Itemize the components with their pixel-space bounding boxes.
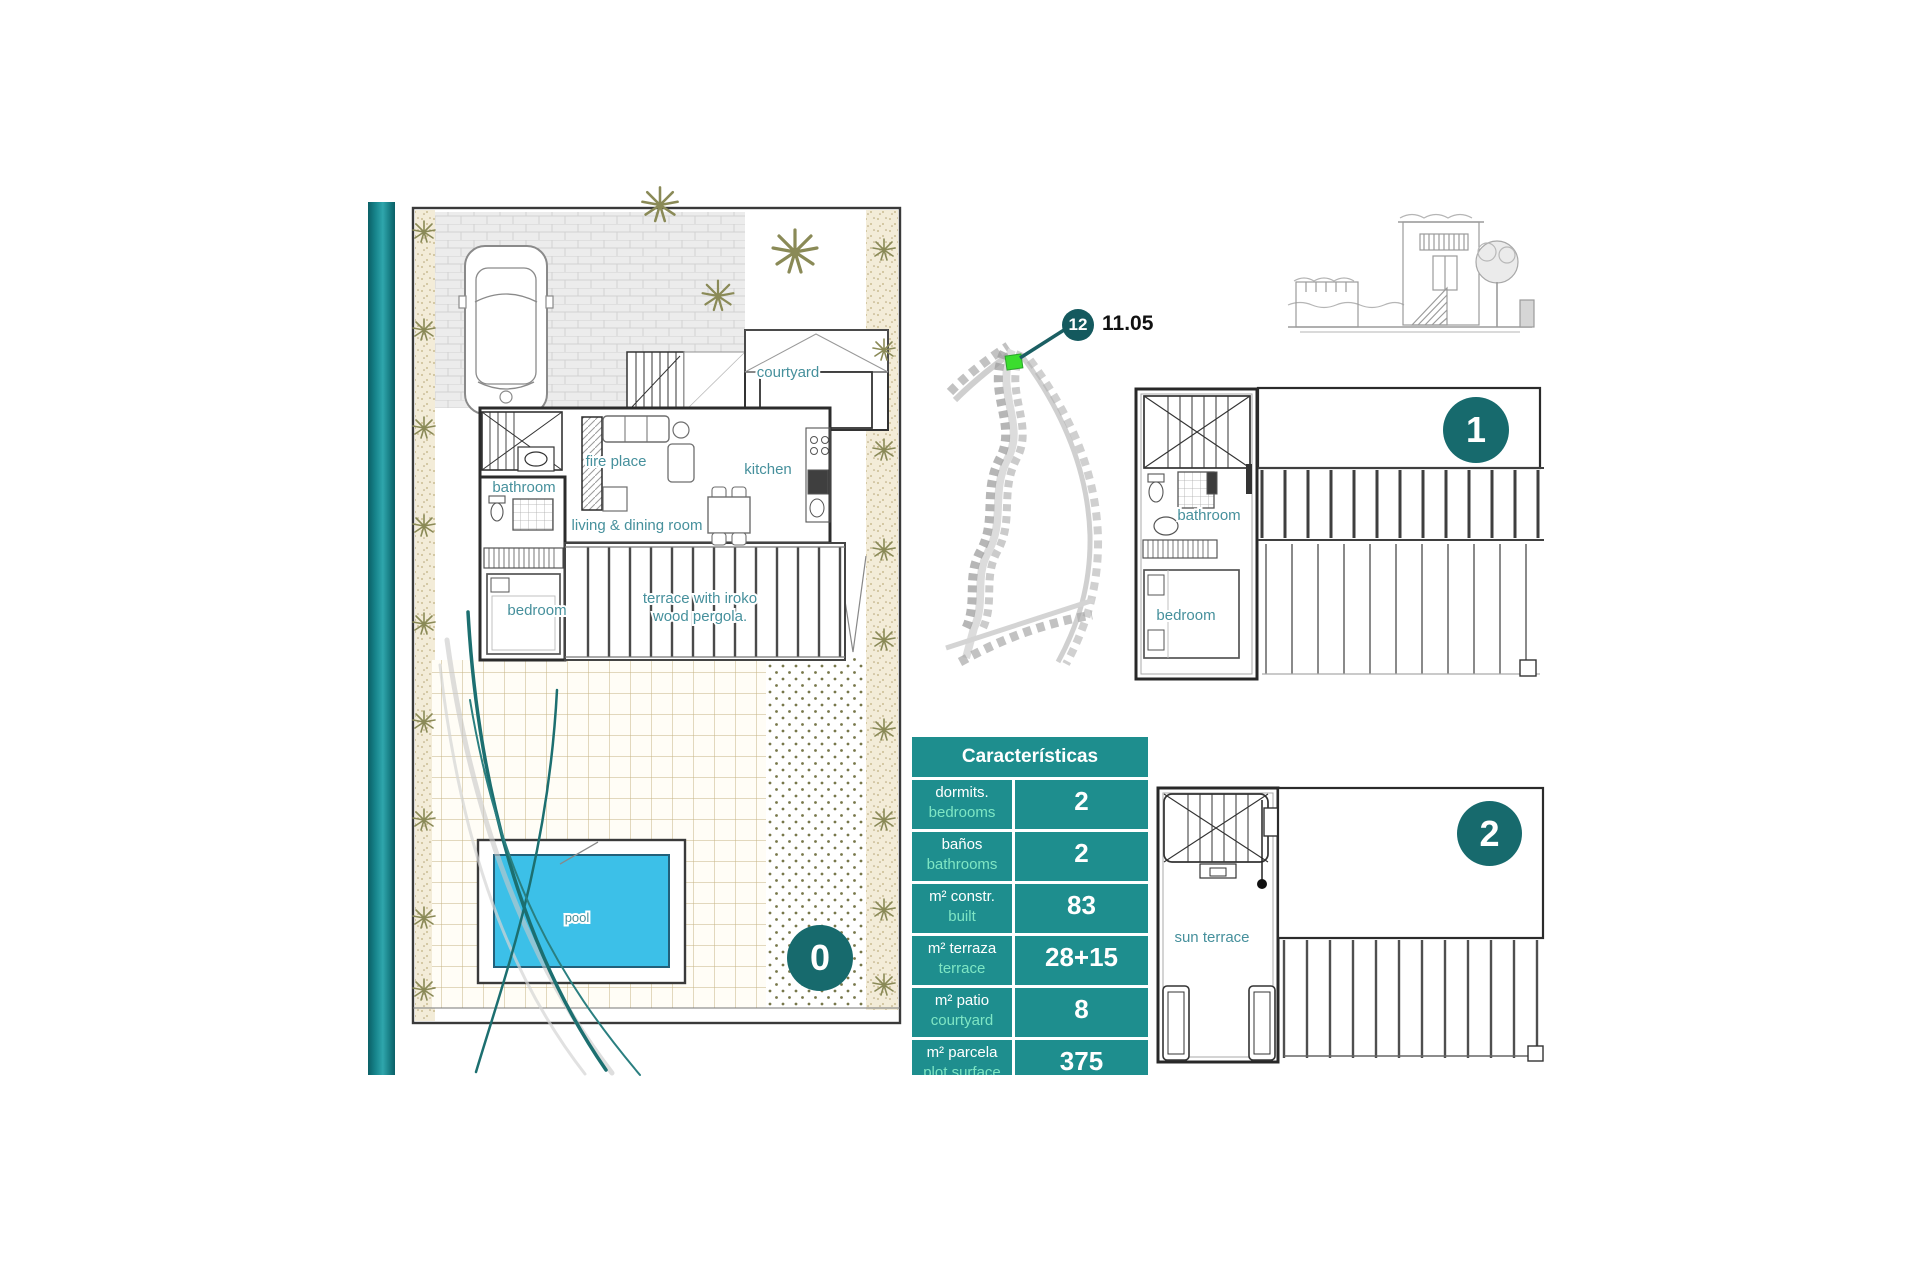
spec-row-terrace: m² terraza terrace 28+15 [912, 936, 1148, 985]
plot-marker-value: 11.05 [1102, 312, 1153, 336]
spec-label-es: dormits. [935, 783, 988, 803]
spec-label-en: terrace [939, 959, 986, 979]
pergola-slats-first-lower [1262, 544, 1540, 676]
spec-table-title: Características [912, 737, 1148, 777]
label-pool: pool [565, 910, 590, 925]
spec-row-built: m² constr. built 83 [912, 884, 1148, 933]
spec-value: 83 [1015, 884, 1148, 933]
level-badge-second-label: 2 [1479, 813, 1499, 855]
label-bedroom-first: bedroom [1156, 607, 1215, 624]
spec-label-en: built [948, 907, 976, 927]
bedroom-furniture [484, 548, 563, 654]
elevation-sketch [1288, 215, 1534, 333]
level-badge-first-label: 1 [1466, 409, 1486, 451]
spec-label-es: m² parcela [927, 1043, 998, 1063]
plans-artwork: bathroom fire place kitchen living & din… [0, 0, 1920, 1280]
level-badge-second: 2 [1457, 801, 1522, 866]
entrance-steps [627, 352, 745, 412]
brochure-page: bathroom fire place kitchen living & din… [0, 0, 1920, 1280]
spec-row-courtyard: m² patio courtyard 8 [912, 988, 1148, 1037]
label-courtyard: courtyard [757, 364, 820, 381]
label-kitchen: kitchen [744, 461, 792, 478]
label-bedroom-ground: bedroom [507, 602, 566, 619]
spec-row-bedrooms: dormits. bedrooms 2 [912, 780, 1148, 829]
label-sun-terrace: sun terrace [1174, 929, 1249, 946]
label-fire-place: fire place [586, 453, 647, 470]
site-plan [946, 330, 1098, 664]
spec-label-es: m² terraza [928, 939, 996, 959]
spec-label-es: m² patio [935, 991, 989, 1011]
label-terrace-line2: wood pergola. [652, 608, 747, 625]
spec-label-en: courtyard [931, 1011, 994, 1031]
pergola-slats-first [1258, 468, 1544, 540]
label-living-dining: living & dining room [572, 517, 703, 534]
marker-connector-line [1020, 330, 1064, 358]
label-terrace-line1: terrace with iroko [643, 590, 757, 607]
spec-row-bathrooms: baños bathrooms 2 [912, 832, 1148, 881]
spec-label-es: baños [942, 835, 983, 855]
pergola-slats-second [1284, 940, 1543, 1061]
ground-floor-plan: bathroom fire place kitchen living & din… [413, 187, 900, 1023]
level-badge-ground-label: 0 [810, 937, 830, 979]
plot-marker-badge: 12 [1062, 309, 1094, 341]
plot-marker-number: 12 [1069, 315, 1088, 335]
accent-bar [368, 202, 395, 1075]
label-bathroom-first: bathroom [1177, 507, 1240, 524]
spec-value: 375 [1015, 1040, 1148, 1075]
label-bathroom-ground: bathroom [492, 479, 555, 496]
interior-stairs [482, 412, 562, 471]
spec-label-en: bathrooms [927, 855, 998, 875]
spec-value: 2 [1015, 780, 1148, 829]
level-badge-first: 1 [1443, 397, 1509, 463]
spec-value: 28+15 [1015, 936, 1148, 985]
spec-value: 2 [1015, 832, 1148, 881]
spec-row-plot-surface: m² parcela plot surface 375 [912, 1040, 1148, 1075]
spec-table: Características dormits. bedrooms 2 baño… [912, 737, 1148, 1075]
spec-value: 8 [1015, 988, 1148, 1037]
spec-label-en: bedrooms [929, 803, 996, 823]
car-icon [459, 246, 553, 414]
spec-label-en: plot surface [923, 1063, 1001, 1075]
level-badge-ground: 0 [787, 925, 853, 991]
spec-label-es: m² constr. [929, 887, 995, 907]
